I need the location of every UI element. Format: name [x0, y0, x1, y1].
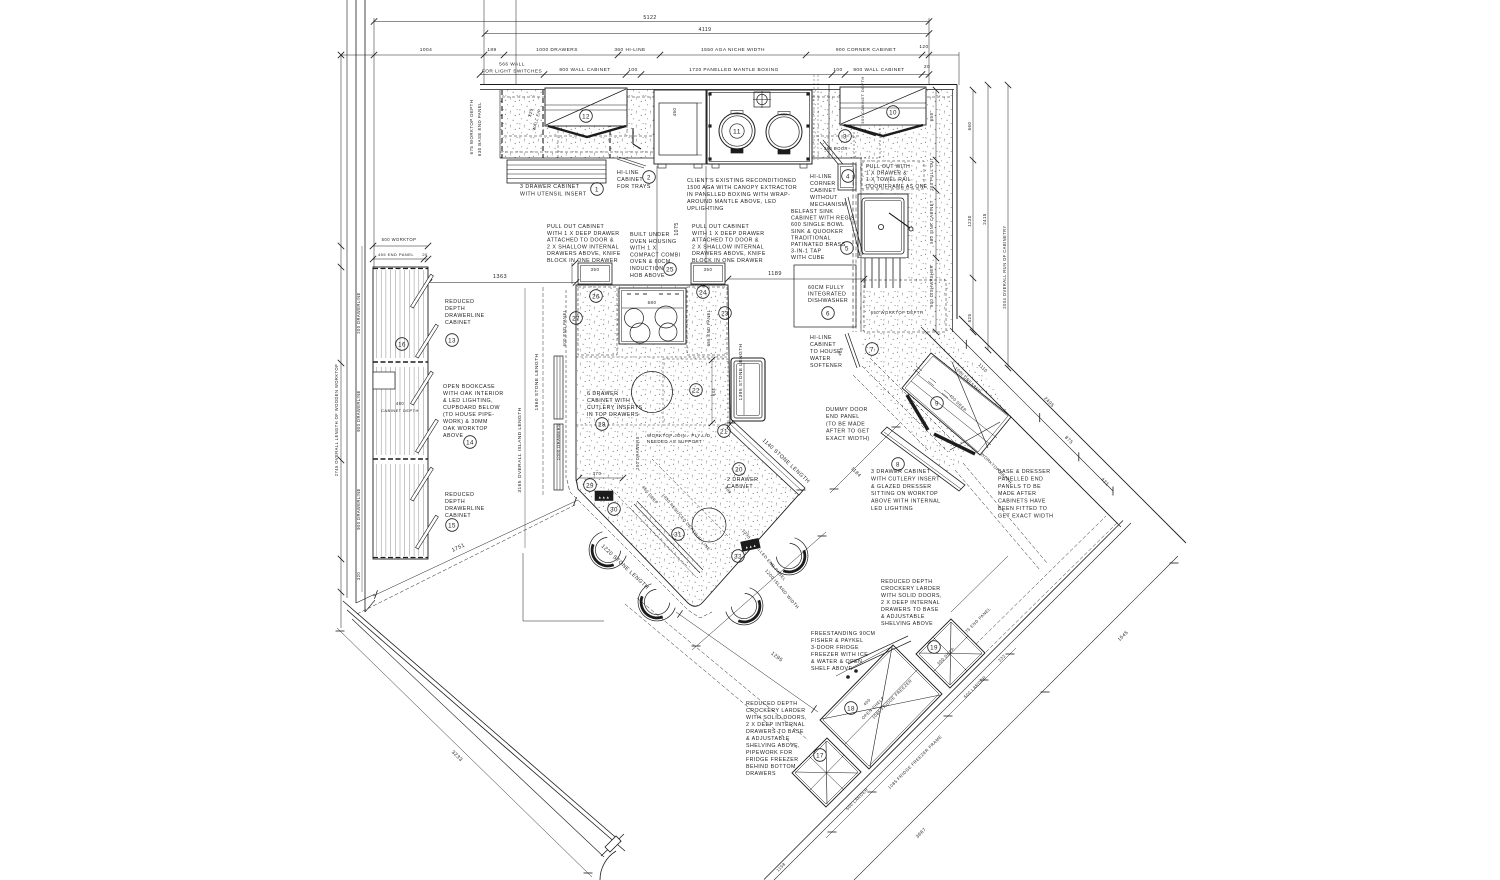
svg-text:CABINET WITH: CABINET WITH — [587, 398, 630, 404]
svg-text:& GLAZED DRESSER: & GLAZED DRESSER — [871, 484, 931, 490]
svg-text:900 CORNER CABINET: 900 CORNER CABINET — [836, 47, 896, 53]
svg-text:630 BASE END PANEL: 630 BASE END PANEL — [477, 102, 482, 156]
svg-text:6: 6 — [826, 310, 830, 317]
svg-text:8: 8 — [896, 461, 900, 468]
svg-text:480: 480 — [396, 401, 404, 406]
svg-text:WITH CUBE: WITH CUBE — [791, 255, 825, 261]
svg-text:WITH SOLID DOORS,: WITH SOLID DOORS, — [881, 593, 942, 599]
svg-text:IN TOP DRAWERS: IN TOP DRAWERS — [587, 412, 639, 418]
svg-text:1189: 1189 — [768, 271, 782, 277]
svg-text:370: 370 — [593, 471, 602, 476]
svg-text:30: 30 — [610, 506, 618, 513]
svg-text:32: 32 — [734, 553, 742, 560]
svg-text:1960 STONE LENGTH: 1960 STONE LENGTH — [534, 353, 540, 410]
svg-text:ABOVE WITH INTERNAL: ABOVE WITH INTERNAL — [871, 499, 940, 505]
svg-text:3-IN-1 TAP: 3-IN-1 TAP — [791, 249, 822, 255]
svg-text:FOR LIGHT SWITCHES: FOR LIGHT SWITCHES — [482, 69, 542, 75]
svg-text:200 DRAWERLINE: 200 DRAWERLINE — [356, 292, 361, 333]
svg-text:PULL OUT WITH: PULL OUT WITH — [866, 164, 910, 170]
svg-text:200 DRAWERS: 200 DRAWERS — [635, 436, 640, 470]
svg-text:FOR TRAYS: FOR TRAYS — [617, 184, 651, 190]
svg-text:TRADITIONAL: TRADITIONAL — [791, 235, 831, 241]
svg-text:CABINET: CABINET — [617, 177, 643, 183]
svg-text:WITHOUT: WITHOUT — [810, 195, 838, 201]
svg-text:1004: 1004 — [420, 47, 432, 53]
svg-text:189: 189 — [487, 47, 496, 53]
svg-text:22: 22 — [692, 387, 700, 394]
svg-text:1000 DRAWERS: 1000 DRAWERS — [536, 47, 578, 53]
svg-text:REDUCED DEPTH: REDUCED DEPTH — [746, 701, 797, 707]
svg-text:350: 350 — [591, 267, 600, 272]
svg-text:800 WALL CABINET: 800 WALL CABINET — [853, 67, 904, 73]
svg-text:TO HOUSE: TO HOUSE — [810, 349, 841, 355]
svg-text:& WATER & OPEN: & WATER & OPEN — [811, 659, 862, 665]
svg-text:CABINET WITH REGIS: CABINET WITH REGIS — [791, 216, 855, 222]
svg-text:EXACT WIDTH): EXACT WIDTH) — [826, 436, 870, 442]
svg-text:CABINET: CABINET — [810, 342, 836, 348]
svg-text:12: 12 — [582, 113, 590, 120]
svg-text:1 X DRAWER &: 1 X DRAWER & — [866, 171, 907, 177]
svg-text:566 WALL: 566 WALL — [499, 62, 525, 68]
svg-text:660: 660 — [967, 122, 972, 131]
svg-text:11: 11 — [733, 129, 741, 136]
svg-text:600 END PANEL: 600 END PANEL — [562, 309, 567, 346]
svg-text:OPEN BOOKCASE: OPEN BOOKCASE — [443, 384, 495, 390]
svg-text:BELFAST SINK: BELFAST SINK — [791, 209, 833, 215]
svg-text:1395 STONE LENGTH: 1395 STONE LENGTH — [738, 343, 744, 400]
svg-text:26: 26 — [592, 293, 600, 300]
svg-text:WITH CUTLERY INSERT: WITH CUTLERY INSERT — [871, 476, 940, 482]
svg-text:WORK) & 30MM: WORK) & 30MM — [443, 419, 488, 425]
svg-text:BEHIND BOTTOM: BEHIND BOTTOM — [746, 764, 796, 770]
svg-text:DRAWERS ABOVE, KNIFE: DRAWERS ABOVE, KNIFE — [547, 251, 621, 257]
svg-text:4119: 4119 — [699, 27, 712, 33]
svg-text:29: 29 — [586, 482, 594, 489]
svg-text:600 DISHWASHER: 600 DISHWASHER — [929, 265, 934, 307]
svg-text:SHELVING ABOVE: SHELVING ABOVE — [881, 621, 933, 627]
svg-text:WITH SOLID DOORS,: WITH SOLID DOORS, — [746, 715, 807, 721]
svg-text:& ADJUSTABLE: & ADJUSTABLE — [746, 736, 790, 742]
svg-text:350 CABINET DEPTH: 350 CABINET DEPTH — [860, 76, 865, 123]
svg-text:BUILT UNDER: BUILT UNDER — [630, 232, 670, 238]
svg-text:20: 20 — [735, 466, 743, 473]
svg-text:WITH 1 X DEEP DRAWER: WITH 1 X DEEP DRAWER — [547, 231, 620, 237]
svg-text:CLIENT'S EXISTING RECONDITIONE: CLIENT'S EXISTING RECONDITIONED — [687, 178, 796, 184]
svg-text:320: 320 — [356, 572, 361, 580]
svg-text:WORKTOP JOIN - PLY LID: WORKTOP JOIN - PLY LID — [647, 433, 711, 438]
svg-text:DRAWERS TO BASE: DRAWERS TO BASE — [746, 729, 804, 735]
svg-text:360 HI-LINE: 360 HI-LINE — [614, 47, 645, 53]
svg-text:2 X DEEP INTERNAL: 2 X DEEP INTERNAL — [881, 600, 940, 606]
svg-text:680: 680 — [648, 300, 657, 305]
svg-text:SITTING ON WORKTOP: SITTING ON WORKTOP — [871, 491, 938, 497]
svg-text:DRAWERLINE: DRAWERLINE — [445, 313, 485, 319]
svg-text:AROUND MANTLE ABOVE, LED: AROUND MANTLE ABOVE, LED — [687, 199, 776, 205]
svg-text:1500 AGA WITH CANOPY EXTRACTOR: 1500 AGA WITH CANOPY EXTRACTOR — [687, 185, 797, 191]
svg-text:FRIDGE FREEZER: FRIDGE FREEZER — [746, 757, 799, 763]
svg-text:3165 OVERALL ISLAND LENGTH: 3165 OVERALL ISLAND LENGTH — [517, 407, 523, 492]
svg-text:14: 14 — [466, 439, 474, 446]
svg-text:560 DOOR: 560 DOOR — [824, 146, 848, 151]
svg-text:COMPACT COMBI: COMPACT COMBI — [630, 252, 681, 258]
svg-text:CROCKERY LARDER: CROCKERY LARDER — [881, 586, 941, 592]
svg-text:9: 9 — [935, 400, 939, 407]
svg-text:PATINATED BRASS: PATINATED BRASS — [791, 242, 846, 248]
svg-text:DEPTH: DEPTH — [445, 499, 465, 505]
svg-text:HOB ABOVE: HOB ABOVE — [630, 273, 665, 279]
svg-text:WITH OAK INTERIOR: WITH OAK INTERIOR — [443, 391, 504, 397]
svg-text:CABINETS HAVE: CABINETS HAVE — [998, 499, 1046, 505]
svg-text:CABINET: CABINET — [445, 513, 471, 519]
svg-text:MADE AFTER: MADE AFTER — [998, 491, 1036, 497]
svg-text:NEEDED AS SUPPORT: NEEDED AS SUPPORT — [647, 439, 702, 444]
svg-text:2415: 2415 — [982, 213, 987, 225]
svg-text:INTEGRATED: INTEGRATED — [808, 292, 846, 298]
svg-text:CABINET: CABINET — [445, 320, 471, 326]
svg-text:1550 AGA NICHE WIDTH: 1550 AGA NICHE WIDTH — [701, 47, 765, 53]
svg-text:DRAWERS ABOVE, KNIFE: DRAWERS ABOVE, KNIFE — [692, 251, 766, 257]
svg-text:SHELF ABOVE: SHELF ABOVE — [811, 666, 852, 672]
svg-text:PANELS TO BE: PANELS TO BE — [998, 484, 1041, 490]
svg-text:HI-LINE: HI-LINE — [810, 335, 832, 341]
svg-text:19: 19 — [930, 644, 938, 651]
svg-text:1230: 1230 — [967, 215, 972, 227]
svg-text:HI-LINE: HI-LINE — [810, 174, 832, 180]
svg-text:100: 100 — [628, 67, 637, 73]
svg-text:BASE & DRESSER: BASE & DRESSER — [998, 469, 1051, 475]
svg-text:SOFTENER: SOFTENER — [810, 363, 842, 369]
svg-text:& LED LIGHTING,: & LED LIGHTING, — [443, 398, 493, 404]
svg-text:900 DRAWERLINE: 900 DRAWERLINE — [356, 488, 361, 529]
svg-text:ATTACHED TO DOOR &: ATTACHED TO DOOR & — [692, 238, 759, 244]
svg-text:REDUCED: REDUCED — [445, 492, 474, 498]
svg-text:CUTLERY INSERTS: CUTLERY INSERTS — [587, 405, 643, 411]
svg-text:PULL OUT CABINET: PULL OUT CABINET — [547, 224, 605, 230]
svg-text:60CM FULLY: 60CM FULLY — [808, 285, 844, 291]
svg-text:IN PANELLED BOXING WITH WRAP-: IN PANELLED BOXING WITH WRAP- — [687, 192, 790, 198]
svg-text:DRAWERS: DRAWERS — [746, 771, 776, 777]
svg-text:OVEN & 60CM: OVEN & 60CM — [630, 259, 671, 265]
svg-text:350: 350 — [704, 267, 713, 272]
svg-text:3: 3 — [843, 133, 847, 140]
svg-text:PANELLED END: PANELLED END — [998, 476, 1043, 482]
svg-text:2 DRAWER: 2 DRAWER — [727, 477, 758, 483]
svg-text:1 X TOWEL RAIL: 1 X TOWEL RAIL — [866, 177, 911, 183]
svg-text:500 WORKTOP: 500 WORKTOP — [382, 237, 417, 242]
svg-text:CABINET: CABINET — [810, 188, 836, 194]
svg-text:644: 644 — [711, 388, 716, 397]
svg-text:& ADJUSTABLE: & ADJUSTABLE — [881, 614, 925, 620]
svg-text:2004 OVERALL RUN OF CABINETRY: 2004 OVERALL RUN OF CABINETRY — [1002, 225, 1007, 308]
svg-text:FREESTANDING 90CM: FREESTANDING 90CM — [811, 631, 875, 637]
svg-text:100: 100 — [833, 67, 842, 73]
svg-text:10: 10 — [889, 109, 897, 116]
svg-text:18: 18 — [847, 705, 855, 712]
svg-text:24: 24 — [699, 289, 707, 296]
svg-text:900 DRAWERLINE: 900 DRAWERLINE — [356, 390, 361, 431]
svg-text:1720 PANELLED MANTLE BOXING: 1720 PANELLED MANTLE BOXING — [689, 67, 779, 73]
svg-text:CORNER: CORNER — [810, 181, 836, 187]
svg-text:AFTER TO GET: AFTER TO GET — [826, 429, 870, 435]
svg-text:OVEN HOUSING: OVEN HOUSING — [630, 239, 677, 245]
svg-text:450: 450 — [672, 108, 677, 117]
svg-text:PULL OUT CABINET: PULL OUT CABINET — [692, 224, 750, 230]
svg-text:2 X SHALLOW INTERNAL: 2 X SHALLOW INTERNAL — [547, 244, 619, 250]
svg-text:25: 25 — [666, 266, 674, 273]
svg-text:3-DOOR FRIDGE: 3-DOOR FRIDGE — [811, 645, 859, 651]
svg-text:31: 31 — [674, 531, 682, 538]
svg-text:(TO HOUSE PIPE-: (TO HOUSE PIPE- — [443, 412, 494, 418]
svg-text:▲▲▲: ▲▲▲ — [598, 496, 610, 500]
svg-text:650 WORKTOP DEPTH: 650 WORKTOP DEPTH — [871, 310, 924, 315]
svg-text:600 SINGLE BOWL: 600 SINGLE BOWL — [791, 222, 845, 228]
svg-text:SINK & QUOOKER: SINK & QUOOKER — [791, 229, 843, 235]
svg-text:2 X SHALLOW INTERNAL: 2 X SHALLOW INTERNAL — [692, 244, 764, 250]
svg-text:LED LIGHTING: LED LIGHTING — [871, 506, 913, 512]
svg-text:4: 4 — [846, 173, 850, 180]
svg-text:2 X DEEP INTERNAL: 2 X DEEP INTERNAL — [746, 722, 805, 728]
svg-text:5: 5 — [845, 245, 849, 252]
svg-text:ATTACHED TO DOOR &: ATTACHED TO DOOR & — [547, 238, 614, 244]
svg-text:455 END PANEL: 455 END PANEL — [378, 252, 414, 257]
svg-text:525: 525 — [967, 314, 972, 323]
svg-text:120: 120 — [919, 44, 928, 50]
svg-text:1: 1 — [595, 186, 599, 193]
svg-text:DRAWERS TO BASE: DRAWERS TO BASE — [881, 607, 939, 613]
svg-text:CUPBOARD BELOW: CUPBOARD BELOW — [443, 405, 500, 411]
svg-text:28: 28 — [598, 421, 606, 428]
svg-text:MECHANISM: MECHANISM — [810, 202, 846, 208]
svg-text:675 WORKTOP DEPTH: 675 WORKTOP DEPTH — [469, 100, 474, 155]
svg-text:15: 15 — [448, 522, 456, 529]
svg-text:655: 655 — [929, 113, 934, 122]
svg-text:1000 DRAWERS: 1000 DRAWERS — [556, 424, 561, 460]
svg-text:17: 17 — [816, 752, 824, 759]
svg-text:16: 16 — [398, 341, 406, 348]
svg-text:7: 7 — [870, 346, 874, 353]
svg-text:2: 2 — [647, 174, 651, 181]
svg-text:WITH 1 X DEEP DRAWER: WITH 1 X DEEP DRAWER — [692, 231, 765, 237]
svg-text:END PANEL: END PANEL — [826, 414, 860, 420]
svg-text:DOOR/FRAME AS ONE: DOOR/FRAME AS ONE — [866, 184, 928, 190]
svg-text:REDUCED DEPTH: REDUCED DEPTH — [881, 579, 932, 585]
svg-text:ABOVE: ABOVE — [443, 433, 464, 439]
svg-text:656 END PANEL: 656 END PANEL — [706, 309, 711, 346]
svg-text:260 PULL OUT: 260 PULL OUT — [929, 157, 934, 190]
svg-text:CABINET DEPTH: CABINET DEPTH — [381, 408, 419, 413]
svg-text:27: 27 — [572, 315, 580, 322]
svg-text:WATER: WATER — [810, 356, 831, 362]
svg-text:UPLIGHTING: UPLIGHTING — [687, 206, 724, 212]
svg-text:WITH UTENSIL INSERT: WITH UTENSIL INSERT — [520, 191, 587, 197]
svg-text:DRAWERLINE: DRAWERLINE — [445, 506, 485, 512]
svg-text:PIPEWORK FOR: PIPEWORK FOR — [746, 750, 793, 756]
svg-text:DUMMY DOOR: DUMMY DOOR — [826, 407, 868, 413]
svg-text:6 DRAWER: 6 DRAWER — [587, 391, 618, 397]
svg-text:21: 21 — [720, 428, 728, 435]
svg-text:13: 13 — [448, 337, 456, 344]
svg-text:1075: 1075 — [674, 222, 680, 235]
svg-text:800 WALL CABINET: 800 WALL CABINET — [559, 67, 610, 73]
svg-text:23: 23 — [721, 310, 729, 317]
svg-text:BEEN FITTED TO: BEEN FITTED TO — [998, 506, 1047, 512]
svg-text:HI-LINE: HI-LINE — [617, 170, 639, 176]
svg-text:(TO BE MADE: (TO BE MADE — [826, 421, 865, 427]
svg-text:OAK WORKTOP: OAK WORKTOP — [443, 426, 488, 432]
svg-text:3 DRAWER CABINET: 3 DRAWER CABINET — [520, 184, 580, 190]
svg-text:2745 OVERALL LENGTH OF WOODEN: 2745 OVERALL LENGTH OF WOODEN WORKTOP — [334, 364, 339, 476]
svg-text:DISHWASHER: DISHWASHER — [808, 298, 848, 304]
svg-text:5122: 5122 — [643, 15, 656, 21]
svg-text:WITH 1 X: WITH 1 X — [630, 246, 657, 252]
svg-text:FISHER & PAYKEL: FISHER & PAYKEL — [811, 638, 863, 644]
svg-text:1363: 1363 — [493, 274, 507, 280]
svg-text:REDUCED: REDUCED — [445, 299, 474, 305]
svg-text:580 SINK CABINET: 580 SINK CABINET — [929, 200, 934, 244]
svg-text:FREEZER WITH ICE: FREEZER WITH ICE — [811, 652, 868, 658]
svg-text:INDUCTION: INDUCTION — [630, 266, 663, 272]
svg-text:DEPTH: DEPTH — [445, 306, 465, 312]
